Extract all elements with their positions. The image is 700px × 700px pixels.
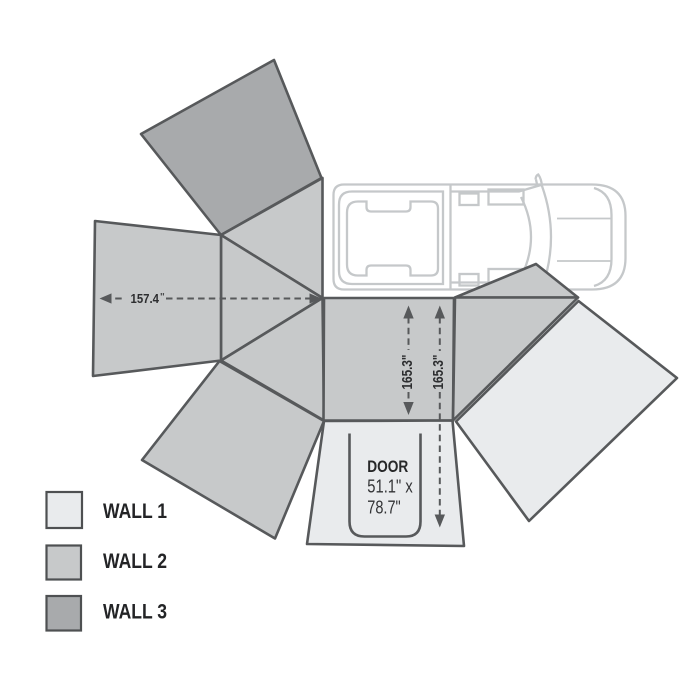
svg-text:51.1" x: 51.1" x [367, 477, 412, 497]
svg-text:165.3": 165.3" [431, 355, 447, 390]
svg-text:165.3": 165.3" [400, 355, 416, 390]
svg-text:WALL 3: WALL 3 [103, 601, 167, 624]
svg-text:WALL 2: WALL 2 [103, 550, 167, 573]
svg-text:": " [160, 292, 165, 303]
svg-text:WALL 1: WALL 1 [103, 500, 167, 523]
svg-text:78.7": 78.7" [367, 498, 400, 518]
svg-text:157.4: 157.4 [131, 291, 160, 306]
svg-text:DOOR: DOOR [367, 457, 408, 476]
